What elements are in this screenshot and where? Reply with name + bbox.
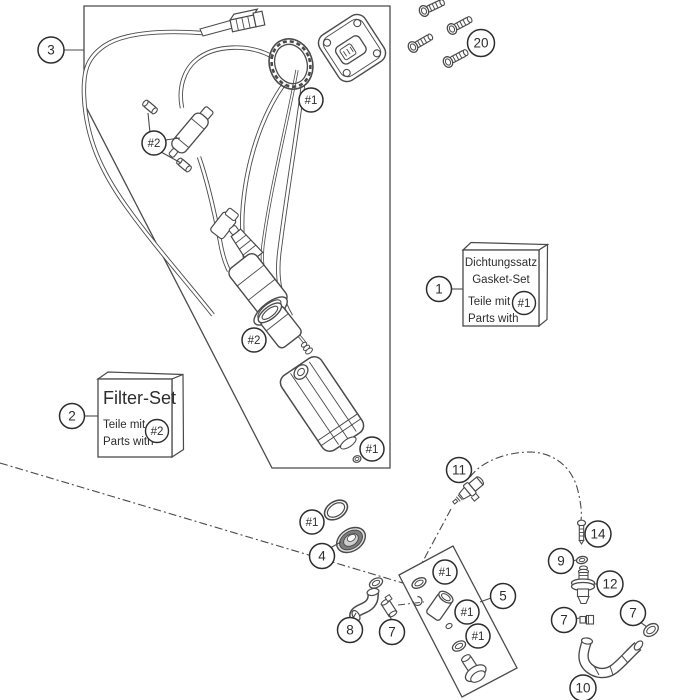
callout-3[interactable]: 3 [38, 37, 64, 63]
svg-text:8: 8 [346, 623, 354, 638]
gasket-box-line3: Teile mit [468, 296, 511, 308]
svg-text:#1: #1 [366, 444, 379, 456]
svg-text:3: 3 [47, 43, 55, 58]
callout-5[interactable]: 5 [491, 584, 516, 609]
svg-text:5: 5 [499, 589, 507, 604]
svg-text:9: 9 [557, 554, 565, 569]
callout-1[interactable]: 1 [427, 277, 452, 302]
small-oring-drawing [352, 455, 362, 464]
gasket-set-box: Dichtungssatz Gasket-Set Teile mit Parts… [463, 243, 548, 327]
screw-14-drawing [578, 520, 586, 544]
screws-20-drawing [406, 0, 474, 69]
svg-text:10: 10 [575, 681, 590, 696]
oval-seal-right-drawing [641, 621, 660, 639]
callout-hash1-top[interactable]: #1 [299, 88, 323, 112]
seal-oring-drawing [321, 496, 351, 524]
svg-text:7: 7 [629, 606, 637, 621]
gasket-box-line1: Dichtungssatz [465, 257, 537, 269]
gasket-box-badge: #1 [518, 298, 531, 310]
svg-text:#2: #2 [148, 138, 161, 150]
svg-text:#1: #1 [439, 567, 452, 579]
callout-8[interactable]: 8 [338, 618, 363, 643]
svg-text:2: 2 [68, 409, 76, 424]
svg-text:#1: #1 [472, 631, 485, 643]
callout-7-right[interactable]: 7 [621, 601, 646, 626]
svg-text:14: 14 [590, 527, 606, 542]
callout-hash1-box-c[interactable]: #1 [466, 624, 490, 648]
hose-clamp-right-drawing [580, 616, 594, 625]
svg-text:#1: #1 [306, 517, 319, 529]
grommet-drawing [332, 522, 370, 557]
callout-hash1-mid[interactable]: #1 [360, 437, 384, 461]
callout-20[interactable]: 20 [468, 30, 495, 57]
svg-text:#2: #2 [248, 335, 261, 347]
svg-text:#1: #1 [305, 95, 318, 107]
svg-text:7: 7 [560, 613, 568, 628]
callout-hash2-top[interactable]: #2 [142, 131, 166, 155]
callout-hash1-box-b[interactable]: #1 [455, 600, 479, 624]
diagram-canvas: Dichtungssatz Gasket-Set Teile mit Parts… [0, 0, 700, 700]
filter-box-badge: #2 [151, 426, 164, 438]
callout-7-mid[interactable]: 7 [380, 620, 405, 645]
svg-text:11: 11 [452, 463, 466, 478]
callout-14[interactable]: 14 [585, 521, 611, 547]
svg-text:12: 12 [602, 577, 617, 592]
filter-box-line1: Teile mit [103, 419, 146, 431]
dash-fuel-line [470, 452, 581, 520]
pipe-kit-drawing [398, 546, 517, 697]
filter-canister-drawing [277, 341, 370, 460]
retaining-ring-drawing [263, 33, 320, 95]
svg-text:#1: #1 [461, 607, 474, 619]
filter-set-box: Filter-Set Teile mit Parts with #2 [98, 372, 184, 457]
callout-10[interactable]: 10 [570, 675, 596, 700]
callout-11[interactable]: 11 [447, 458, 472, 483]
svg-text:4: 4 [318, 549, 326, 564]
callout-hash1-ring[interactable]: #1 [300, 510, 324, 534]
oring-9-drawing [576, 556, 588, 565]
callout-hash1-box-a[interactable]: #1 [433, 560, 457, 584]
parts-diagram-page: Dichtungssatz Gasket-Set Teile mit Parts… [0, 0, 700, 700]
hose-10-drawing [581, 637, 644, 675]
filter-box-line2: Parts with [103, 436, 154, 448]
svg-text:7: 7 [388, 625, 396, 640]
svg-text:20: 20 [473, 36, 488, 51]
dash-leader-oring [0, 463, 433, 592]
callout-2[interactable]: 2 [60, 404, 85, 429]
callout-12[interactable]: 12 [597, 571, 623, 597]
callout-hash2-mid[interactable]: #2 [242, 328, 266, 352]
pump-flange-drawing [315, 11, 390, 86]
regulator-12-drawing [572, 566, 595, 604]
gasket-box-line4: Parts with [468, 313, 519, 325]
callouts-layer: 3 20 #1 #2 1 #2 2 #1 [38, 30, 646, 700]
harness-connector-drawing [200, 8, 265, 36]
gasket-box-line2: Gasket-Set [472, 274, 530, 286]
filter-box-title: Filter-Set [103, 388, 176, 408]
callout-9[interactable]: 9 [549, 549, 574, 574]
callout-4[interactable]: 4 [310, 544, 335, 569]
callout-7-left[interactable]: 7 [552, 608, 577, 633]
svg-text:1: 1 [435, 282, 443, 297]
